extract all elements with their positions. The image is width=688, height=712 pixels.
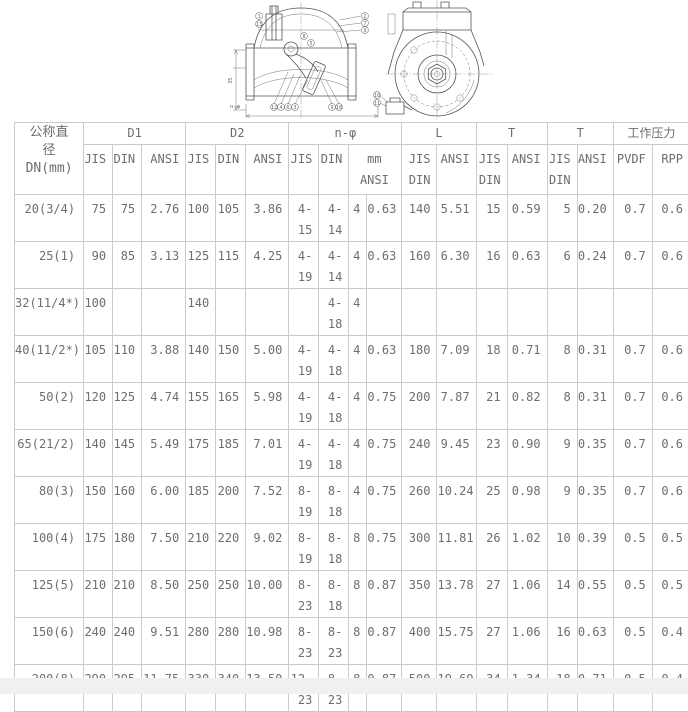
left-dimension <box>233 50 246 110</box>
value-cell: 140 <box>186 289 216 336</box>
front-section-view: 35 n-φ 1 13 8 5 2 7 9 12 <box>228 2 378 118</box>
dn-cell: 100(4) <box>15 524 84 571</box>
value-cell: 8 <box>349 618 367 665</box>
value-cell: 140 <box>402 195 437 242</box>
value-cell: 140 <box>84 430 113 477</box>
value-cell: 8- 19 <box>289 524 319 571</box>
callout-side-11: 11 <box>374 100 381 107</box>
value-cell <box>507 289 547 336</box>
value-cell: 0.5 <box>652 571 688 618</box>
callout-3: 3 <box>292 104 299 111</box>
subheader-pvdf: PVDF <box>613 145 652 195</box>
value-cell: 0.31 <box>577 336 613 383</box>
value-cell: 0.20 <box>577 195 613 242</box>
value-cell: 4- 18 <box>319 383 349 430</box>
svg-text:6: 6 <box>286 105 289 111</box>
group-n-phi: n-φ <box>289 123 402 145</box>
value-cell <box>289 289 319 336</box>
value-cell: 0.87 <box>367 618 402 665</box>
value-cell: 155 <box>186 383 216 430</box>
value-cell: 9 <box>547 430 577 477</box>
value-cell: 4- 18 <box>319 289 349 336</box>
group-header-row: 公称直 径 DN(mm) D1 D2 n-φ L T T 工作压力 <box>15 123 688 145</box>
svg-text:10: 10 <box>374 93 380 99</box>
spec-table-body: 20(3/4)75752.761001053.864- 154- 1440.63… <box>15 195 688 712</box>
value-cell: 125 <box>186 242 216 289</box>
n-phi-label: n-φ <box>230 104 241 110</box>
value-cell: 0.55 <box>577 571 613 618</box>
callout-6: 6 <box>285 104 292 111</box>
valve-drawing-svg: 35 n-φ 1 13 8 5 2 7 9 12 <box>228 0 506 122</box>
value-cell: 4- 19 <box>289 383 319 430</box>
dn-cell: 80(3) <box>15 477 84 524</box>
group-l: L <box>402 123 476 145</box>
value-cell: 0.6 <box>652 477 688 524</box>
group-pressure: 工作压力 <box>613 123 688 145</box>
value-cell: 4 <box>349 195 367 242</box>
value-cell: 115 <box>216 242 246 289</box>
callout-9b: 9 <box>329 104 336 111</box>
value-cell: 75 <box>113 195 142 242</box>
hinge-pin-bore <box>288 46 294 52</box>
value-cell: 6.00 <box>142 477 186 524</box>
value-cell: 125 <box>113 383 142 430</box>
value-cell: 4.25 <box>246 242 289 289</box>
table-row: 20(3/4)75752.761001053.864- 154- 1440.63… <box>15 195 688 242</box>
svg-text:11: 11 <box>374 101 380 107</box>
value-cell: 0.4 <box>652 618 688 665</box>
subheader-l-ansi: ANSI <box>437 145 476 195</box>
callout-10: 10 <box>336 104 343 111</box>
value-cell: 0.6 <box>652 195 688 242</box>
value-cell: 16 <box>476 242 507 289</box>
value-cell: 25 <box>476 477 507 524</box>
value-cell: 15.75 <box>437 618 476 665</box>
subheader-d1-jis: JIS <box>84 145 113 195</box>
value-cell: 7.01 <box>246 430 289 477</box>
table-row: 65(21/2)1401455.491751857.014- 194- 1840… <box>15 430 688 477</box>
value-cell: 7.87 <box>437 383 476 430</box>
value-cell: 150 <box>216 336 246 383</box>
table-row: 125(5)2102108.5025025010.008- 238- 1880.… <box>15 571 688 618</box>
value-cell: 280 <box>216 618 246 665</box>
value-cell: 220 <box>216 524 246 571</box>
subheader-t1-jisdin: JIS DIN <box>476 145 507 195</box>
callout-13: 13 <box>256 21 263 28</box>
svg-text:9: 9 <box>363 28 366 34</box>
value-cell: 0.7 <box>613 383 652 430</box>
value-cell: 260 <box>402 477 437 524</box>
value-cell: 10 <box>547 524 577 571</box>
value-cell: 8- 23 <box>289 618 319 665</box>
value-cell: 0.35 <box>577 477 613 524</box>
value-cell: 160 <box>402 242 437 289</box>
value-cell: 8 <box>547 383 577 430</box>
value-cell: 0.7 <box>613 336 652 383</box>
cap-bolt <box>266 6 282 40</box>
value-cell: 200 <box>216 477 246 524</box>
value-cell: 0.5 <box>652 524 688 571</box>
left-dim-label: 35 <box>228 77 234 84</box>
subheader-t2-ansi: ANSI <box>577 145 613 195</box>
value-cell: 10.24 <box>437 477 476 524</box>
subheader-nphi-jis: JIS <box>289 145 319 195</box>
table-row: 40(11/2*)1051103.881401505.004- 194- 184… <box>15 336 688 383</box>
value-cell: 200 <box>402 383 437 430</box>
value-cell: 90 <box>84 242 113 289</box>
value-cell: 250 <box>186 571 216 618</box>
sub-header-row: JIS DIN ANSI JIS DIN ANSI JIS DIN mm ANS… <box>15 145 688 195</box>
value-cell: 1.06 <box>507 571 547 618</box>
drain-fitting <box>386 98 412 114</box>
value-cell: 27 <box>476 571 507 618</box>
svg-text:7: 7 <box>363 21 366 27</box>
callout-9: 9 <box>362 27 369 34</box>
value-cell: 2.76 <box>142 195 186 242</box>
value-cell: 0.7 <box>613 242 652 289</box>
subheader-mm-ansi: mm ANSI <box>349 145 402 195</box>
bottom-leaders <box>274 72 339 104</box>
value-cell <box>476 289 507 336</box>
subheader-d2-ansi: ANSI <box>246 145 289 195</box>
value-cell <box>142 289 186 336</box>
value-cell: 5.49 <box>142 430 186 477</box>
svg-text:13: 13 <box>256 22 262 28</box>
value-cell: 4- 19 <box>289 242 319 289</box>
dn-cell: 25(1) <box>15 242 84 289</box>
value-cell: 9.45 <box>437 430 476 477</box>
table-row: 25(1)90853.131251154.254- 194- 1440.6316… <box>15 242 688 289</box>
value-cell: 4 <box>349 383 367 430</box>
value-cell: 105 <box>216 195 246 242</box>
value-cell: 4 <box>349 336 367 383</box>
value-cell: 0.75 <box>367 524 402 571</box>
svg-text:1: 1 <box>257 14 260 20</box>
value-cell: 4 <box>349 430 367 477</box>
value-cell: 250 <box>216 571 246 618</box>
callout-2: 2 <box>362 13 369 20</box>
value-cell: 210 <box>186 524 216 571</box>
value-cell: 8 <box>547 336 577 383</box>
group-t2: T <box>547 123 613 145</box>
value-cell: 160 <box>113 477 142 524</box>
value-cell: 26 <box>476 524 507 571</box>
value-cell: 7.09 <box>437 336 476 383</box>
value-cell: 350 <box>402 571 437 618</box>
table-row: 32(11/4*)1001404- 184 <box>15 289 688 336</box>
value-cell: 0.98 <box>507 477 547 524</box>
value-cell: 0.7 <box>613 430 652 477</box>
footer-strip <box>0 678 688 694</box>
value-cell: 9.51 <box>142 618 186 665</box>
value-cell <box>652 289 688 336</box>
value-cell: 0.71 <box>507 336 547 383</box>
side-flange-view: 10 11 <box>374 0 492 120</box>
dn-cell: 40(11/2*) <box>15 336 84 383</box>
value-cell: 210 <box>113 571 142 618</box>
value-cell <box>367 289 402 336</box>
callout-7: 7 <box>362 20 369 27</box>
value-cell: 180 <box>113 524 142 571</box>
value-cell: 240 <box>402 430 437 477</box>
svg-text:4: 4 <box>279 105 282 111</box>
table-row: 50(2)1201254.741551655.984- 194- 1840.75… <box>15 383 688 430</box>
value-cell: 0.75 <box>367 383 402 430</box>
value-cell: 140 <box>186 336 216 383</box>
value-cell <box>402 289 437 336</box>
value-cell: 3.86 <box>246 195 289 242</box>
value-cell: 0.5 <box>613 524 652 571</box>
value-cell: 0.5 <box>613 618 652 665</box>
value-cell: 0.7 <box>613 195 652 242</box>
value-cell: 0.6 <box>652 383 688 430</box>
dn-cell: 125(5) <box>15 571 84 618</box>
value-cell <box>547 289 577 336</box>
svg-text:8: 8 <box>302 34 305 40</box>
value-cell: 100 <box>84 289 113 336</box>
table-row: 80(3)1501606.001852007.528- 198- 1840.75… <box>15 477 688 524</box>
group-t1: T <box>476 123 547 145</box>
dn-header: 公称直 径 DN(mm) <box>15 123 84 195</box>
value-cell: 0.63 <box>507 242 547 289</box>
callout-4: 4 <box>278 104 285 111</box>
svg-text:9: 9 <box>330 105 333 111</box>
value-cell: 0.5 <box>613 571 652 618</box>
value-cell: 0.63 <box>367 336 402 383</box>
dn-cell: 32(11/4*) <box>15 289 84 336</box>
callout-12: 12 <box>271 104 278 111</box>
value-cell: 3.88 <box>142 336 186 383</box>
group-d2: D2 <box>186 123 289 145</box>
value-cell: 8.50 <box>142 571 186 618</box>
value-cell: 0.24 <box>577 242 613 289</box>
subheader-d2-jis: JIS <box>186 145 216 195</box>
value-cell: 175 <box>186 430 216 477</box>
value-cell <box>437 289 476 336</box>
value-cell: 240 <box>84 618 113 665</box>
svg-text:5: 5 <box>309 41 312 47</box>
dn-cell: 50(2) <box>15 383 84 430</box>
bottom-dimension <box>246 100 378 118</box>
value-cell: 27 <box>476 618 507 665</box>
value-cell: 185 <box>186 477 216 524</box>
value-cell: 105 <box>84 336 113 383</box>
value-cell: 400 <box>402 618 437 665</box>
value-cell: 8- 18 <box>319 477 349 524</box>
side-bolt <box>388 14 395 34</box>
value-cell: 100 <box>186 195 216 242</box>
value-cell: 8- 19 <box>289 477 319 524</box>
value-cell: 4- 19 <box>289 336 319 383</box>
value-cell: 7.50 <box>142 524 186 571</box>
value-cell: 165 <box>216 383 246 430</box>
value-cell: 8 <box>349 571 367 618</box>
value-cell: 0.6 <box>652 242 688 289</box>
svg-text:10: 10 <box>336 105 342 111</box>
value-cell: 0.63 <box>577 618 613 665</box>
value-cell: 8- 23 <box>319 618 349 665</box>
value-cell: 4 <box>349 289 367 336</box>
value-cell: 85 <box>113 242 142 289</box>
value-cell: 14 <box>547 571 577 618</box>
dn-cell: 20(3/4) <box>15 195 84 242</box>
valve-technical-drawing: 35 n-φ 1 13 8 5 2 7 9 12 <box>228 0 506 122</box>
value-cell: 300 <box>402 524 437 571</box>
dn-cell: 150(6) <box>15 618 84 665</box>
value-cell: 4 <box>349 242 367 289</box>
svg-text:2: 2 <box>363 14 366 20</box>
value-cell: 8- 23 <box>289 571 319 618</box>
value-cell: 110 <box>113 336 142 383</box>
value-cell: 8- 18 <box>319 571 349 618</box>
value-cell <box>613 289 652 336</box>
value-cell: 120 <box>84 383 113 430</box>
value-cell: 4- 18 <box>319 336 349 383</box>
callout-side-10: 10 <box>374 92 381 99</box>
value-cell: 1.02 <box>507 524 547 571</box>
value-cell: 4- 19 <box>289 430 319 477</box>
value-cell: 9.02 <box>246 524 289 571</box>
value-cell: 10.98 <box>246 618 289 665</box>
subheader-nphi-din: DIN <box>319 145 349 195</box>
value-cell: 18 <box>476 336 507 383</box>
table-row: 100(4)1751807.502102209.028- 198- 1880.7… <box>15 524 688 571</box>
value-cell: 150 <box>84 477 113 524</box>
value-cell: 5.98 <box>246 383 289 430</box>
value-cell: 280 <box>186 618 216 665</box>
value-cell: 8 <box>349 524 367 571</box>
value-cell: 210 <box>84 571 113 618</box>
value-cell: 180 <box>402 336 437 383</box>
value-cell: 4- 14 <box>319 242 349 289</box>
value-cell <box>246 289 289 336</box>
value-cell: 4.74 <box>142 383 186 430</box>
value-cell: 6.30 <box>437 242 476 289</box>
value-cell <box>113 289 142 336</box>
group-d1: D1 <box>84 123 186 145</box>
value-cell: 0.39 <box>577 524 613 571</box>
subheader-l-jisdin: JIS DIN <box>402 145 437 195</box>
value-cell <box>216 289 246 336</box>
value-cell: 0.6 <box>652 336 688 383</box>
value-cell: 175 <box>84 524 113 571</box>
right-leaders <box>336 16 361 32</box>
value-cell: 7.52 <box>246 477 289 524</box>
value-cell: 0.6 <box>652 430 688 477</box>
value-cell: 240 <box>113 618 142 665</box>
value-cell: 8- 18 <box>319 524 349 571</box>
dn-cell: 65(21/2) <box>15 430 84 477</box>
value-cell: 4 <box>349 477 367 524</box>
value-cell: 0.90 <box>507 430 547 477</box>
value-cell: 0.7 <box>613 477 652 524</box>
drain-leaders <box>380 96 388 106</box>
value-cell: 6 <box>547 242 577 289</box>
value-cell: 0.82 <box>507 383 547 430</box>
value-cell: 23 <box>476 430 507 477</box>
svg-text:12: 12 <box>271 105 277 111</box>
value-cell: 145 <box>113 430 142 477</box>
value-cell: 10.00 <box>246 571 289 618</box>
value-cell: 16 <box>547 618 577 665</box>
value-cell: 4- 18 <box>319 430 349 477</box>
subheader-d1-din: DIN <box>113 145 142 195</box>
subheader-t1-ansi: ANSI <box>507 145 547 195</box>
value-cell: 0.75 <box>367 430 402 477</box>
value-cell: 5 <box>547 195 577 242</box>
side-bonnet-taper <box>388 30 484 74</box>
value-cell: 5.00 <box>246 336 289 383</box>
value-cell <box>577 289 613 336</box>
subheader-d1-ansi: ANSI <box>142 145 186 195</box>
value-cell: 0.63 <box>367 195 402 242</box>
value-cell: 4- 14 <box>319 195 349 242</box>
value-cell: 13.78 <box>437 571 476 618</box>
callout-5: 5 <box>308 40 315 47</box>
value-cell: 4- 15 <box>289 195 319 242</box>
value-cell: 0.63 <box>367 242 402 289</box>
value-cell: 11.81 <box>437 524 476 571</box>
subheader-d2-din: DIN <box>216 145 246 195</box>
value-cell: 15 <box>476 195 507 242</box>
subheader-t2-jisdin: JIS DIN <box>547 145 577 195</box>
value-cell: 21 <box>476 383 507 430</box>
value-cell: 0.87 <box>367 571 402 618</box>
value-cell: 75 <box>84 195 113 242</box>
value-cell: 0.59 <box>507 195 547 242</box>
value-cell: 3.13 <box>142 242 186 289</box>
subheader-rpp: RPP <box>652 145 688 195</box>
value-cell: 1.06 <box>507 618 547 665</box>
callout-8: 8 <box>301 33 308 40</box>
value-cell: 9 <box>547 477 577 524</box>
table-row: 150(6)2402409.5128028010.988- 238- 2380.… <box>15 618 688 665</box>
value-cell: 0.35 <box>577 430 613 477</box>
svg-text:3: 3 <box>293 105 296 111</box>
value-cell: 5.51 <box>437 195 476 242</box>
dimension-spec-table: 公称直 径 DN(mm) D1 D2 n-φ L T T 工作压力 JIS DI… <box>14 122 688 712</box>
value-cell: 0.75 <box>367 477 402 524</box>
value-cell: 0.31 <box>577 383 613 430</box>
callout-1: 1 <box>256 13 263 20</box>
value-cell: 185 <box>216 430 246 477</box>
